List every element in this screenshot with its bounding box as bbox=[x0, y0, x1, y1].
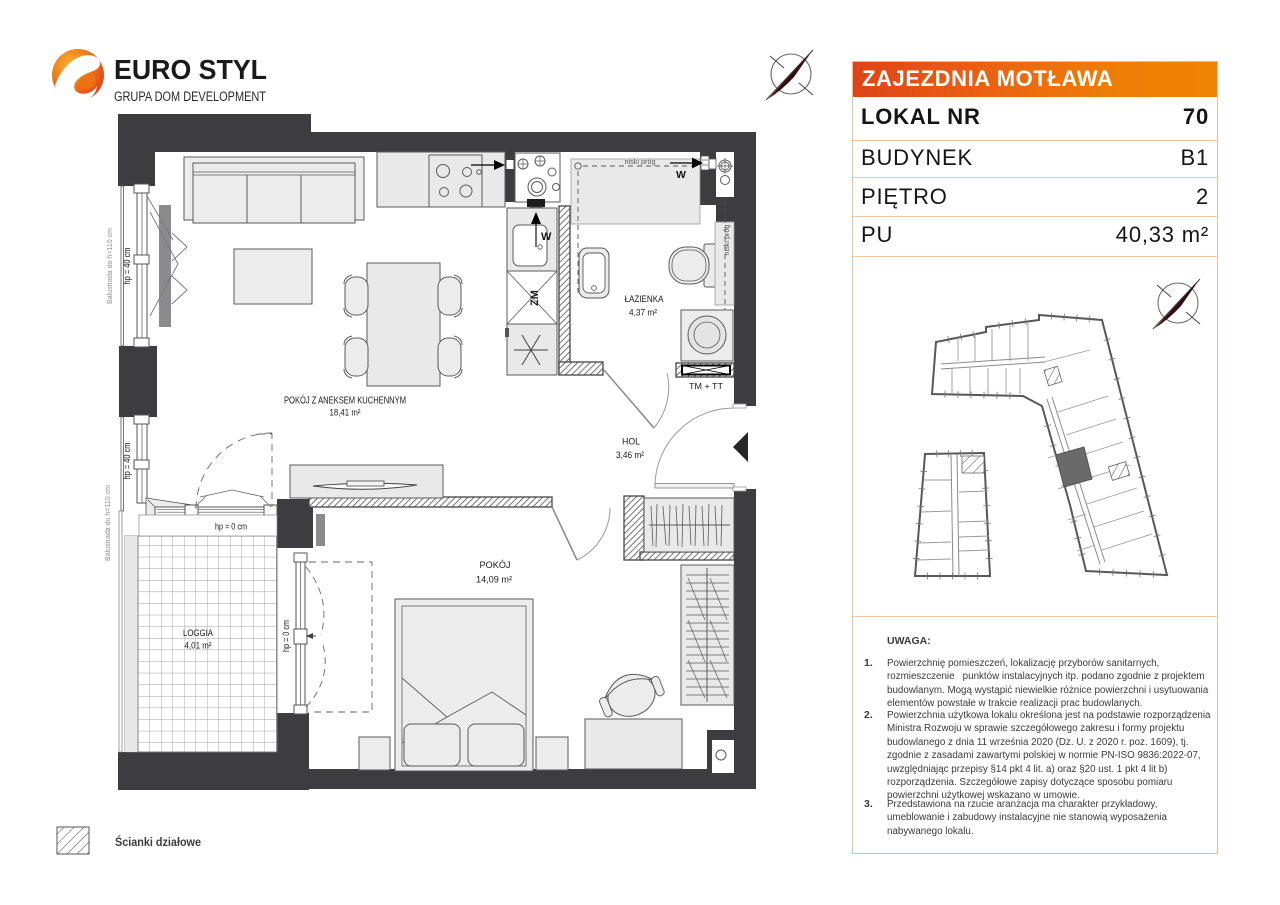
svg-text:hp = 40 cm: hp = 40 cm bbox=[122, 248, 132, 285]
svg-text:niski próg: niski próg bbox=[722, 225, 731, 256]
svg-text:ŁAZIENKA: ŁAZIENKA bbox=[625, 294, 665, 305]
svg-text:4,37 m²: 4,37 m² bbox=[629, 308, 657, 318]
svg-text:3,46 m²: 3,46 m² bbox=[616, 450, 644, 460]
svg-text:hp = 40 cm: hp = 40 cm bbox=[122, 443, 132, 480]
svg-text:TM + TT: TM + TT bbox=[689, 381, 723, 391]
svg-text:14,09 m²: 14,09 m² bbox=[476, 575, 512, 585]
svg-text:hp = 0 cm: hp = 0 cm bbox=[215, 522, 247, 532]
svg-text:niski próg: niski próg bbox=[625, 157, 656, 166]
svg-text:POKÓJ Z ANEKSEM KUCHENNYM: POKÓJ Z ANEKSEM KUCHENNYM bbox=[284, 394, 406, 407]
svg-text:Balustrada do h=110 cm: Balustrada do h=110 cm bbox=[103, 485, 112, 561]
svg-text:hp = 0 cm: hp = 0 cm bbox=[281, 620, 291, 652]
svg-text:4,01 m²: 4,01 m² bbox=[185, 641, 212, 651]
svg-text:HOL: HOL bbox=[622, 437, 640, 448]
svg-text:Ścianki działowe: Ścianki działowe bbox=[115, 836, 201, 849]
svg-text:POKÓJ: POKÓJ bbox=[480, 560, 511, 571]
svg-text:Balustrada do h=110 cm: Balustrada do h=110 cm bbox=[105, 228, 114, 304]
svg-text:ZM: ZM bbox=[529, 290, 541, 306]
svg-text:W: W bbox=[676, 169, 686, 181]
svg-text:W: W bbox=[541, 231, 552, 243]
svg-text:18,41 m²: 18,41 m² bbox=[330, 408, 361, 418]
svg-text:LOGGIA: LOGGIA bbox=[183, 628, 214, 639]
